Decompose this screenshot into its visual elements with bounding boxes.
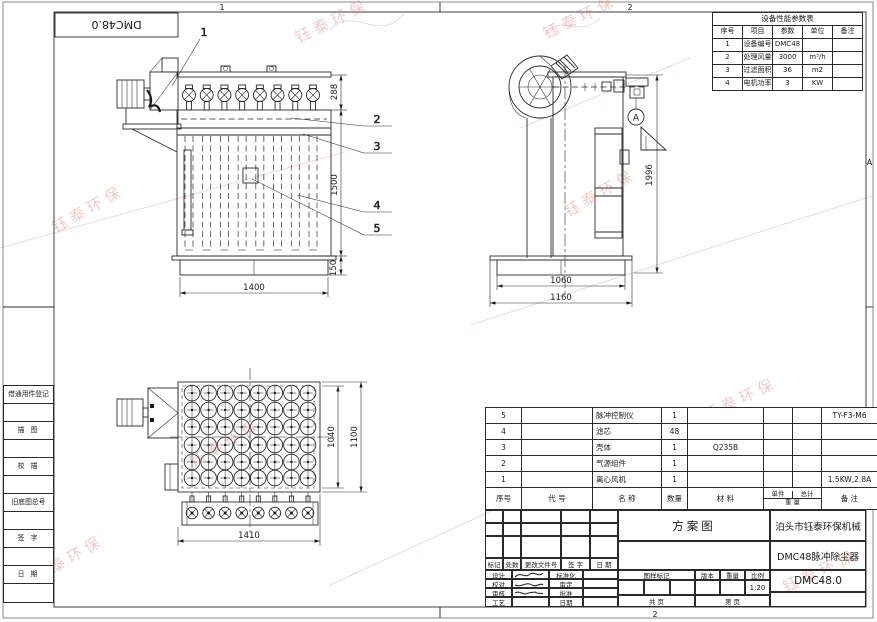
bom-name: 离心风机 xyxy=(593,472,662,488)
bom-code xyxy=(522,456,593,472)
pages-total: 共 页 xyxy=(618,595,695,607)
product-name: DMC48脉冲除尘器 xyxy=(770,541,866,570)
revision-cell xyxy=(503,510,521,523)
dim-front-body: 1500 xyxy=(330,174,340,196)
bom-header: 数量 xyxy=(662,488,688,510)
margin-label: 描 图 xyxy=(4,422,54,440)
front-view: 1400 288 1500 150 1 2 3 xyxy=(117,26,392,297)
bom-material: Q235B xyxy=(688,440,764,456)
callout-4: 4 xyxy=(374,199,381,212)
bom-header: 名 称 xyxy=(593,488,662,510)
bom-code xyxy=(522,424,593,440)
params-row: 1设备编号DMC48 xyxy=(713,39,863,52)
sign-label-process: 工艺 xyxy=(485,597,512,607)
balloon-letter: A xyxy=(633,114,640,124)
revision-cell xyxy=(590,523,618,536)
sign-blank xyxy=(583,588,618,597)
sign-blank xyxy=(583,597,618,607)
dim-front-top: 288 xyxy=(330,84,340,100)
params-header: 项目 xyxy=(743,26,773,39)
sign-label-design: 设计 xyxy=(485,570,512,579)
margin-blank xyxy=(4,440,54,458)
bom-header: 序号 xyxy=(486,488,522,510)
params-cell xyxy=(833,39,863,52)
bom-seq: 3 xyxy=(486,440,522,456)
params-cell: 过滤面积 xyxy=(743,65,773,78)
sign-blank xyxy=(583,570,618,579)
revision-cell xyxy=(561,523,590,536)
revision-cell xyxy=(590,510,618,523)
bom-total-weight xyxy=(793,456,822,472)
side-detail-balloon: A xyxy=(628,109,644,125)
version-cell xyxy=(695,580,720,595)
sign-label-check: 校对 xyxy=(485,579,512,588)
margin-label: 校 描 xyxy=(4,458,54,476)
sign-label-approve-review: 审定 xyxy=(549,579,583,588)
company-name: 泊头市钰泰环保机械 xyxy=(770,510,866,541)
callout-1: 1 xyxy=(201,26,208,39)
params-cell xyxy=(833,65,863,78)
bom-remark: TY-F3-M6 xyxy=(822,408,877,424)
drawing-number: DMC48.0 xyxy=(770,570,866,592)
collector-side xyxy=(490,66,666,294)
margin-blank xyxy=(4,548,54,566)
collector-front xyxy=(172,66,336,275)
callout-2: 2 xyxy=(374,113,381,126)
dim-side-outer: 1160 xyxy=(550,293,572,303)
margin-blank xyxy=(4,512,54,530)
bom-row: 3 壳体 1Q235B xyxy=(486,440,877,456)
bom-qty: 48 xyxy=(662,424,688,440)
stamp-cell xyxy=(618,580,644,595)
bom-material xyxy=(688,408,764,424)
signature-scribble xyxy=(512,579,549,588)
fan-top xyxy=(117,388,178,438)
bom-unit-weight xyxy=(764,456,793,472)
params-cell: KW xyxy=(803,78,833,91)
params-cell: 处理风量 xyxy=(743,52,773,65)
bom-table: 5 脉冲控制仪 1 TY-F3-M6 4 滤芯 48 3 壳体 1Q235B 2… xyxy=(485,407,877,510)
bom-qty: 1 xyxy=(662,440,688,456)
revision-cell xyxy=(485,510,503,523)
bom-header-unit-weight: 单件 xyxy=(764,491,793,498)
dim-front-base: 150 xyxy=(329,260,339,276)
params-cell xyxy=(803,39,833,52)
pages-current: 第 页 xyxy=(695,595,770,607)
bom-code xyxy=(522,472,593,488)
revision-header: 标记 xyxy=(485,558,503,570)
bom-unit-weight xyxy=(764,440,793,456)
margin-label: 借通用件登记 xyxy=(4,386,54,404)
revision-header: 签 字 xyxy=(561,558,590,570)
side-dimensions: 1060 1160 1996 xyxy=(490,75,663,307)
fan-side xyxy=(509,55,578,258)
bom-remark xyxy=(822,456,877,472)
sign-label-ratify: 批准 xyxy=(549,588,583,597)
dim-front-width: 1400 xyxy=(243,283,265,293)
zone-marker-1: 1 xyxy=(219,3,224,12)
signature-scribble xyxy=(512,588,549,597)
params-cell xyxy=(833,52,863,65)
stamp-header-scale: 比例 xyxy=(745,570,770,580)
params-row: 3过滤面积36m2 xyxy=(713,65,863,78)
callout-5: 5 xyxy=(374,222,381,235)
bom-seq: 1 xyxy=(486,472,522,488)
revision-cell xyxy=(590,536,618,558)
params-header: 参数 xyxy=(773,26,803,39)
params-row: 4电机功率3KW xyxy=(713,78,863,91)
bom-name: 脉冲控制仪 xyxy=(593,408,662,424)
stamp-cell xyxy=(644,580,670,595)
stamp-cell xyxy=(670,580,695,595)
params-header: 序号 xyxy=(713,26,743,39)
bom-unit-weight xyxy=(764,408,793,424)
corner-drawing-number: DMC48.0 xyxy=(91,18,141,31)
params-cell: 3000 xyxy=(773,52,803,65)
bom-unit-weight xyxy=(764,472,793,488)
params-row: 2处理风量3000m³/h xyxy=(713,52,863,65)
params-header: 备注 xyxy=(833,26,863,39)
bom-total-weight xyxy=(793,408,822,424)
bom-total-weight xyxy=(793,472,822,488)
params-cell: 4 xyxy=(713,78,743,91)
top-dimensions: 1040 1100 1410 xyxy=(178,382,367,546)
params-cell: 2 xyxy=(713,52,743,65)
params-cell: 36 xyxy=(773,65,803,78)
revision-cell xyxy=(503,536,521,558)
title-blank-cell xyxy=(618,541,770,570)
revision-header: 处数 xyxy=(503,558,521,570)
revision-cell xyxy=(485,523,503,536)
dim-side-inner: 1060 xyxy=(550,276,572,286)
margin-label: 签 字 xyxy=(4,530,54,548)
bom-remark xyxy=(822,440,877,456)
bom-header-total-weight: 总计 xyxy=(793,491,821,498)
bom-seq: 5 xyxy=(486,408,522,424)
params-cell: 1 xyxy=(713,39,743,52)
weight-cell xyxy=(720,580,745,595)
margin-label: 日 期 xyxy=(4,566,54,584)
bom-material xyxy=(688,472,764,488)
scale-value: 1:20 xyxy=(745,580,770,595)
params-cell: m³/h xyxy=(803,52,833,65)
bom-header-weight: 单件总计 重 量 xyxy=(764,488,822,510)
bom-name: 滤芯 xyxy=(593,424,662,440)
margin-label-column: 借通用件登记 描 图 校 描 旧底图总号 签 字 日 期 xyxy=(3,385,54,603)
bom-seq: 4 xyxy=(486,424,522,440)
callout-3: 3 xyxy=(374,140,381,153)
zone-marker-2-bottom: 2 xyxy=(652,610,657,619)
margin-blank xyxy=(4,404,54,422)
bom-qty: 1 xyxy=(662,472,688,488)
bom-row: 1 离心风机 1 1.5KW,2.8A xyxy=(486,472,877,488)
pulse-valve-row xyxy=(183,85,320,110)
bom-remark: 1.5KW,2.8A xyxy=(822,472,877,488)
dim-top-outer: 1100 xyxy=(350,426,360,448)
sign-label-date: 日期 xyxy=(549,597,583,607)
zone-marker-2-top: 2 xyxy=(627,3,632,12)
bom-total-weight xyxy=(793,424,822,440)
bom-row: 2 气源组件 1 xyxy=(486,456,877,472)
bom-header: 备 注 xyxy=(822,488,877,510)
margin-blank xyxy=(4,476,54,494)
revision-cell xyxy=(521,536,561,558)
margin-label: 旧底图总号 xyxy=(4,494,54,512)
dim-side-height: 1996 xyxy=(645,164,655,186)
bom-qty: 1 xyxy=(662,456,688,472)
bom-material xyxy=(688,424,764,440)
drawing-type: 方案图 xyxy=(618,510,770,541)
revision-cell xyxy=(521,523,561,536)
sign-label-audit: 审核 xyxy=(485,588,512,597)
bom-name: 壳体 xyxy=(593,440,662,456)
title-block: 标记 处数 更改文件号 签 字 日 期 设计 标准化 校对 审定 审核 批准 工… xyxy=(485,510,866,607)
bom-code xyxy=(522,440,593,456)
revision-header: 日 期 xyxy=(590,558,618,570)
side-view: A 1060 1160 1996 xyxy=(490,55,666,307)
params-cell: 3 xyxy=(773,78,803,91)
params-cell: m2 xyxy=(803,65,833,78)
bom-material xyxy=(688,456,764,472)
bom-header-weight-label: 重 量 xyxy=(764,499,821,506)
bom-name: 气源组件 xyxy=(593,456,662,472)
params-title: 设备性能参数表 xyxy=(713,13,863,26)
params-cell: 设备编号 xyxy=(743,39,773,52)
params-cell: DMC48 xyxy=(773,39,803,52)
bom-total-weight xyxy=(793,440,822,456)
revision-cell xyxy=(521,510,561,523)
stamp-header-mark: 图样标记 xyxy=(618,570,695,580)
filter-cartridges-front xyxy=(185,136,317,250)
bom-seq: 2 xyxy=(486,456,522,472)
dim-top-inner: 1040 xyxy=(327,426,337,448)
collector-top xyxy=(165,368,334,532)
fan-front xyxy=(117,58,181,152)
sign-blank xyxy=(583,579,618,588)
front-callouts: 1 2 3 4 5 xyxy=(172,26,392,235)
top-view: 1040 1100 1410 xyxy=(117,368,367,546)
bom-qty: 1 xyxy=(662,408,688,424)
revision-cell xyxy=(561,510,590,523)
params-header: 单位 xyxy=(803,26,833,39)
bom-row: 4 滤芯 48 xyxy=(486,424,877,440)
stamp-header-weight: 重量 xyxy=(720,570,745,580)
revision-cell xyxy=(561,536,590,558)
title-blank-cell xyxy=(770,592,866,607)
sign-blank xyxy=(512,597,549,607)
equipment-params-table: 设备性能参数表 序号 项目 参数 单位 备注 1设备编号DMC48 2处理风量3… xyxy=(712,12,863,91)
revision-cell xyxy=(503,523,521,536)
params-cell xyxy=(833,78,863,91)
bom-header-row: 序号 代 号 名 称 数量 材 料 单件总计 重 量 备 注 xyxy=(486,488,877,510)
drawing-sheet: DMC48.0 1 2 2 A B xyxy=(0,0,877,622)
revision-cell xyxy=(485,536,503,558)
bom-unit-weight xyxy=(764,424,793,440)
bom-remark xyxy=(822,424,877,440)
bom-header: 材 料 xyxy=(688,488,764,510)
zone-marker-a: A xyxy=(867,158,873,167)
bom-row: 5 脉冲控制仪 1 TY-F3-M6 xyxy=(486,408,877,424)
revision-header: 更改文件号 xyxy=(521,558,561,570)
bom-code xyxy=(522,408,593,424)
stamp-header-version: 版本 xyxy=(695,570,720,580)
dim-top-width: 1410 xyxy=(238,531,260,541)
bom-header: 代 号 xyxy=(522,488,593,510)
signature-scribble xyxy=(512,570,549,579)
sign-label-standardization: 标准化 xyxy=(549,570,583,579)
params-cell: 电机功率 xyxy=(743,78,773,91)
params-cell: 3 xyxy=(713,65,743,78)
margin-blank xyxy=(4,584,54,603)
